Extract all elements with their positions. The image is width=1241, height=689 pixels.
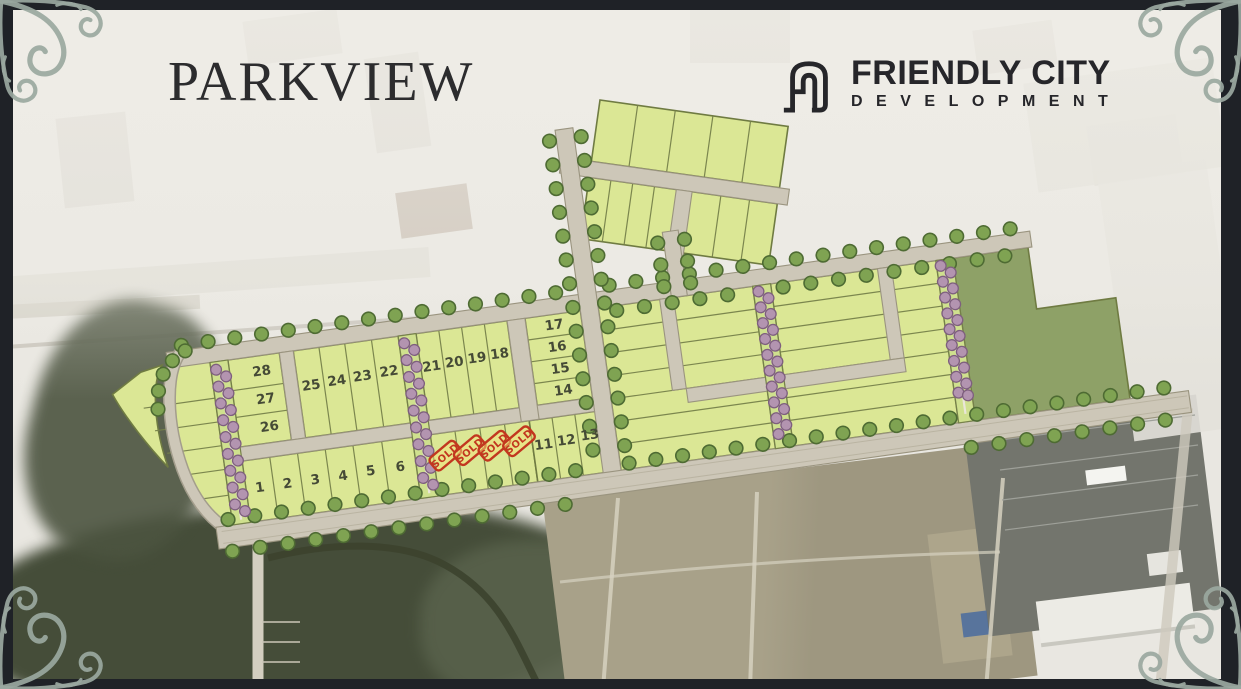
lot-number: 22 <box>379 362 400 380</box>
map-canvas: 1 2 3 4 5 6 11 12 13 14 15 16 17 18 <box>13 10 1221 679</box>
lot-number: 12 <box>556 431 577 449</box>
lot-number: 17 <box>544 316 565 334</box>
lot-number: 16 <box>547 338 568 356</box>
site-plan-map: 1 2 3 4 5 6 11 12 13 14 15 16 17 18 <box>13 10 1221 679</box>
developer-logo-text: FRIENDLY CITY DEVELOPMENT <box>851 56 1121 111</box>
lot-number: 11 <box>533 436 554 454</box>
lot-number: 18 <box>489 345 510 363</box>
lot-number: 26 <box>259 418 280 436</box>
lot-number: 14 <box>553 381 574 399</box>
flyer-frame: 1 2 3 4 5 6 11 12 13 14 15 16 17 18 <box>0 0 1241 689</box>
developer-logo: FRIENDLY CITY DEVELOPMENT <box>780 56 1121 114</box>
lot-number: 24 <box>326 372 347 390</box>
developer-subtitle: DEVELOPMENT <box>851 93 1121 111</box>
lot-number: 20 <box>444 353 465 371</box>
lot-number: 19 <box>467 349 488 367</box>
east-block-east <box>770 260 958 446</box>
lot-number: 27 <box>255 390 276 408</box>
lot-number: 13 <box>579 426 600 444</box>
developer-name: FRIENDLY CITY <box>851 56 1121 90</box>
lot-number: 28 <box>251 362 272 380</box>
lot-number: 15 <box>550 360 571 378</box>
lot-number: 25 <box>301 376 322 394</box>
friendly-city-arch-icon <box>780 56 838 114</box>
lot-number: 21 <box>421 357 442 375</box>
page-title: PARKVIEW <box>168 50 474 114</box>
lot-number: 23 <box>352 367 373 385</box>
